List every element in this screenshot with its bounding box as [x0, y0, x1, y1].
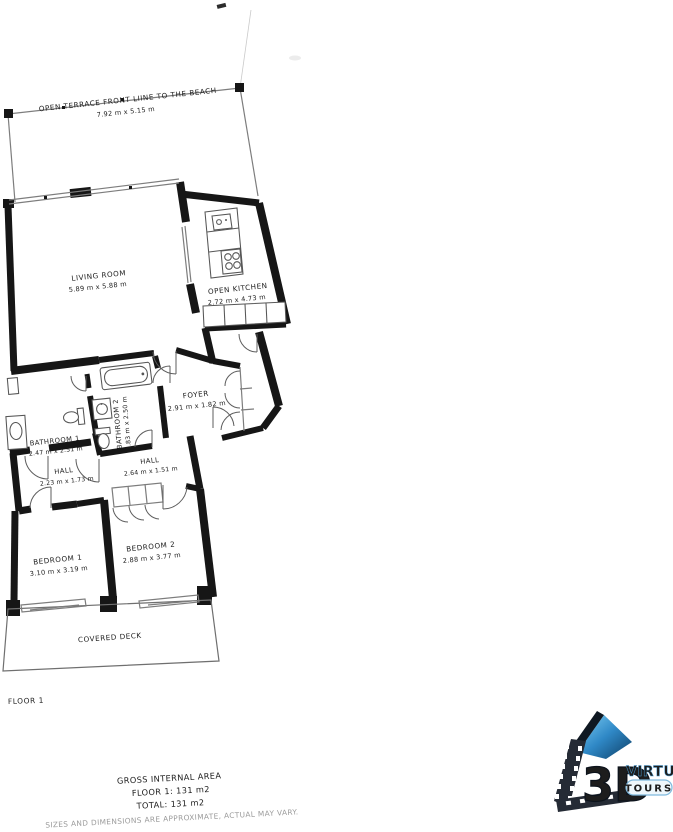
wardrobe-divider	[145, 484, 147, 503]
shelf-icon	[7, 378, 18, 395]
deck-label: COVERED DECK	[78, 631, 142, 644]
wall-segment	[222, 428, 263, 438]
artifact-smudge	[289, 56, 301, 61]
wall-segment	[180, 182, 186, 222]
wall-segment	[11, 360, 99, 371]
closet-line	[240, 367, 244, 431]
foyer-label: FOYER	[182, 389, 209, 401]
bathroom1-dims: 2.47 m x 2.51 m	[29, 445, 84, 458]
sink-icon	[212, 214, 232, 230]
wall-segment	[77, 500, 104, 504]
wall-tick	[129, 186, 132, 189]
vanity-icon	[92, 398, 112, 420]
summary-total: TOTAL: 131 m2	[135, 797, 204, 811]
wall-segment	[10, 450, 30, 453]
wardrobe-divider	[128, 486, 130, 505]
disclaimer: SIZES AND DIMENSIONS ARE APPROXIMATE, AC…	[45, 807, 299, 829]
door-arc	[163, 485, 187, 509]
wall-segment	[87, 374, 89, 388]
wall-segment	[99, 353, 154, 360]
entry-door-arc	[239, 334, 257, 352]
logo-virtual-text: VIRTUAL	[626, 764, 673, 780]
terrace-post	[235, 83, 244, 92]
terrace-post	[4, 109, 13, 118]
wall-segment	[19, 509, 31, 511]
wall-segment	[259, 332, 279, 406]
wall-segment	[213, 361, 240, 366]
closet-door-arc	[225, 393, 240, 408]
sink-basin-icon	[217, 220, 222, 225]
wardrobe-door-arc	[129, 506, 144, 520]
toilet-icon	[63, 408, 85, 426]
vanity-basin	[96, 403, 108, 415]
bath1-counter-icon	[6, 415, 27, 449]
terrace-dims: 7.92 m x 5.15 m	[96, 105, 155, 119]
wall-segment	[190, 436, 200, 489]
wardrobe-door-arc	[113, 508, 128, 522]
burner-icon	[226, 263, 233, 270]
floorplan-canvas: OPEN TERRACE FRONT LIINE TO THE BEACH 7.…	[0, 0, 673, 832]
glazing	[9, 179, 191, 283]
hall1-label: HALL	[54, 466, 74, 476]
area-summary: GROSS INTERNAL AREA FLOOR 1: 131 m2 TOTA…	[117, 770, 223, 811]
summary-floor1: FLOOR 1: 131 m2	[132, 784, 211, 798]
sliding-door-line	[9, 183, 179, 204]
wardrobe-icon	[112, 483, 163, 507]
door-arc	[30, 487, 51, 508]
wall-segment	[190, 284, 196, 313]
burner-icon	[234, 262, 241, 269]
scan-artifacts	[217, 3, 301, 61]
toilet-bowl	[63, 411, 79, 424]
terrace-left-line	[8, 114, 15, 202]
wall-segment	[186, 486, 200, 489]
door-arc	[213, 407, 234, 428]
wall-segment	[8, 206, 14, 371]
door-arc	[153, 351, 176, 374]
hall2-label: HALL	[140, 456, 160, 466]
artifact-dash	[217, 3, 227, 9]
burner-icon	[225, 254, 232, 261]
faucet-icon	[225, 219, 227, 221]
closet-door-arc	[225, 371, 240, 386]
bedroom1-dims: 3.10 m x 3.19 m	[29, 564, 88, 578]
foyer-dims: 2.91 m x 1.82 m	[167, 399, 226, 413]
hall2-dims: 2.64 m x 1.51 m	[124, 465, 179, 478]
wall-segment	[181, 194, 259, 203]
wall-segment	[52, 504, 77, 507]
boundary-extension-line	[240, 10, 251, 88]
wall-segment	[263, 406, 279, 428]
terrace-right-line	[240, 88, 258, 196]
window-line	[185, 226, 191, 282]
closet-door-arc	[221, 412, 240, 430]
floor-tag: FLOOR 1	[8, 696, 44, 706]
door-arc	[25, 456, 48, 479]
wall-segment	[200, 489, 213, 597]
wall-segment	[104, 500, 113, 599]
wall-tick	[44, 196, 47, 199]
sliding-door-line	[9, 179, 179, 200]
wall-segment	[13, 453, 19, 511]
wall-segment	[14, 511, 15, 601]
bathtub-icon	[100, 362, 152, 390]
wall-segment	[160, 386, 166, 438]
wardrobe-door-arc	[145, 505, 159, 519]
logo-3d-virtual-tours: 3D VIRTUAL TOURS	[554, 711, 673, 812]
burner-icon	[233, 253, 240, 260]
door-arc	[71, 376, 86, 391]
bedroom2-dims: 2.88 m x 3.77 m	[122, 551, 181, 565]
stove-icon	[221, 249, 242, 274]
window-line	[182, 227, 188, 283]
floorplan-page: OPEN TERRACE FRONT LIINE TO THE BEACH 7.…	[0, 0, 673, 832]
logo-tours-text: TOURS	[625, 784, 673, 795]
